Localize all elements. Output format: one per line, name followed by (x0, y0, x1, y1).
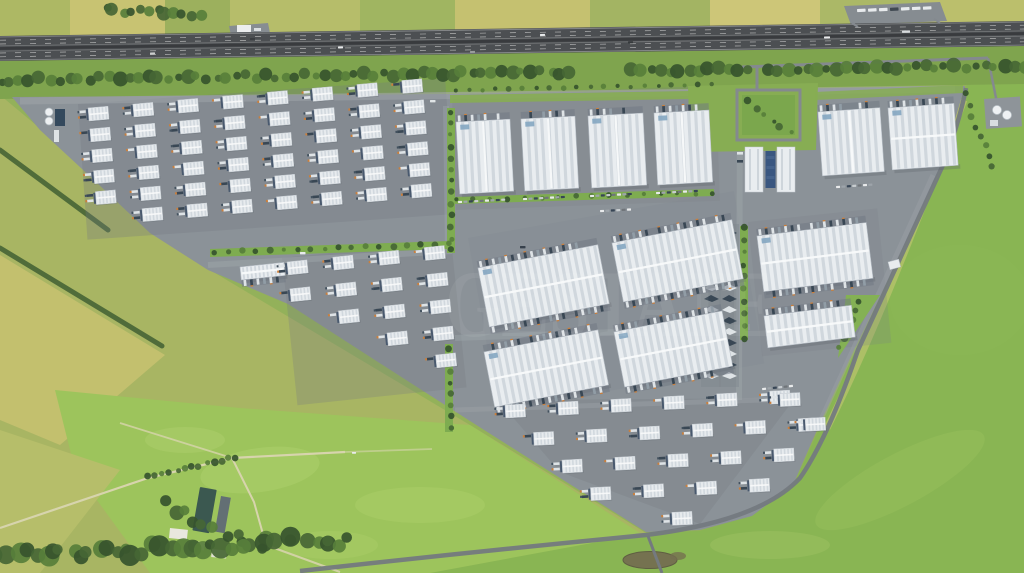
aerial-render-of-logistics-park: GESTATE (0, 0, 1024, 573)
watermark-text: GESTATE (445, 251, 775, 357)
aerial-render-canvas: GESTATE (0, 0, 1024, 573)
